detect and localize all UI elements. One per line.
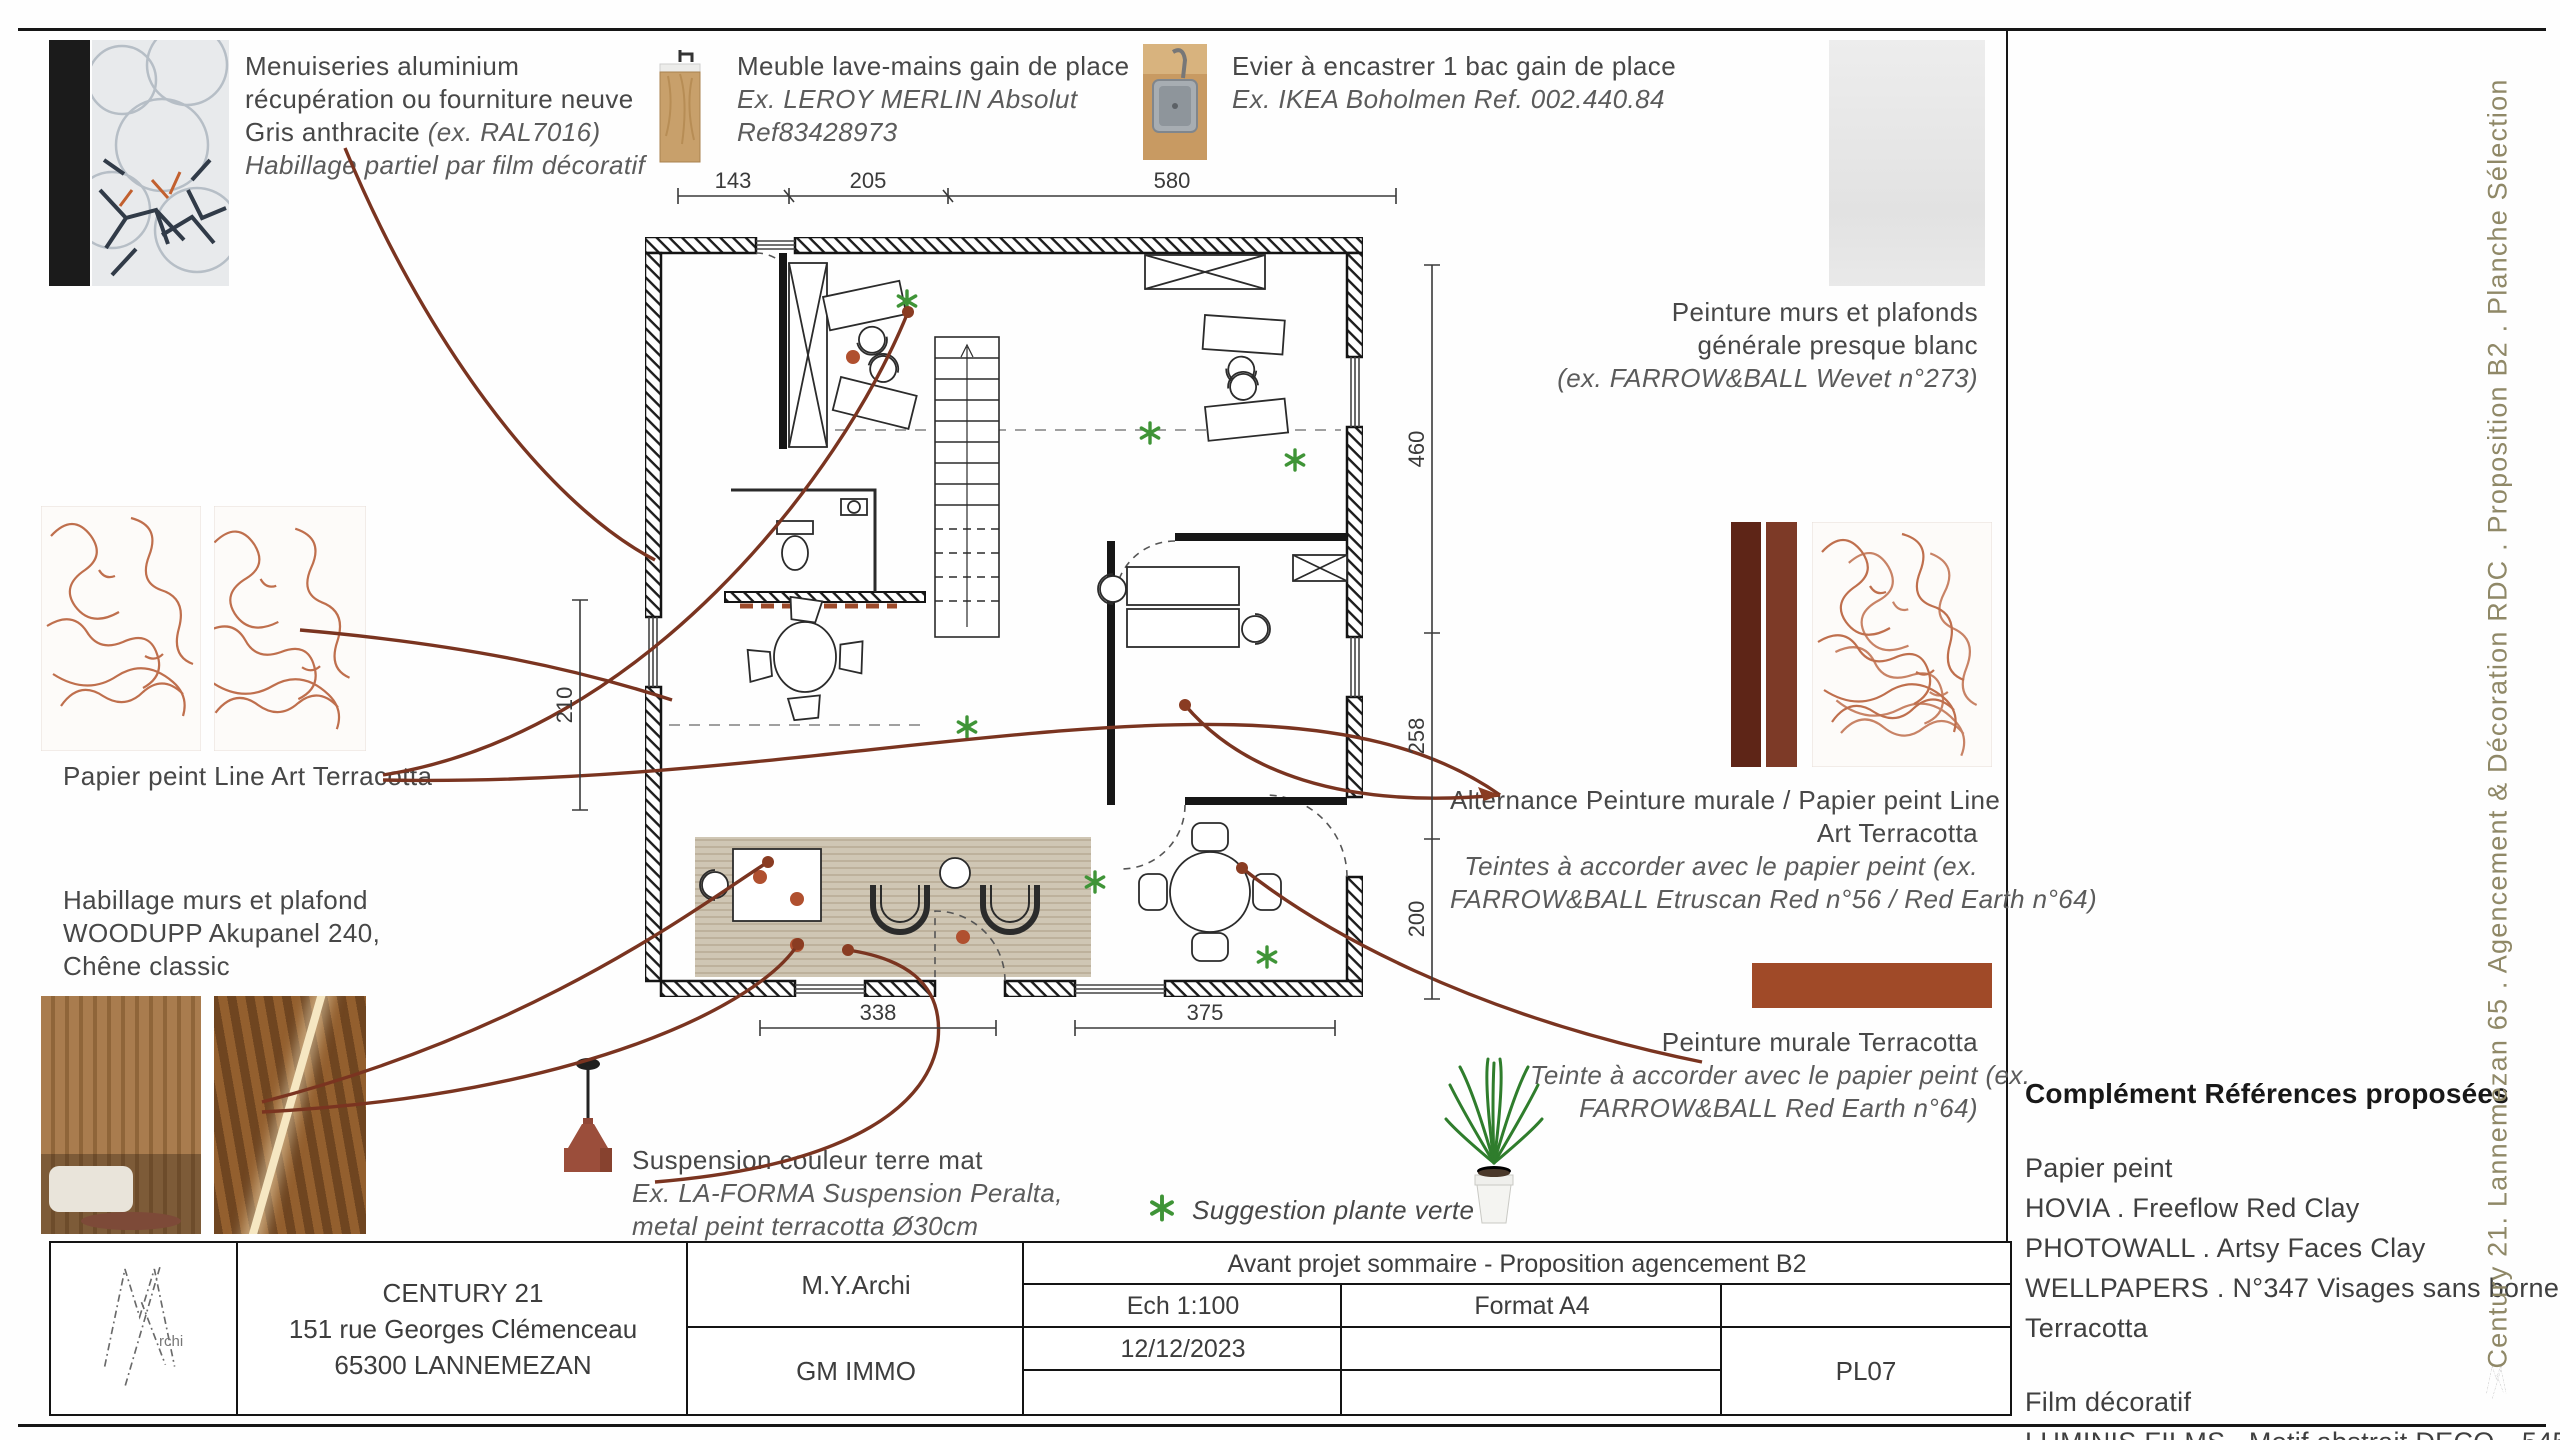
titleblock-empty-cell xyxy=(1340,1326,1724,1373)
dashed-guides xyxy=(669,430,1341,725)
annotation-line: Habillage murs et plafond xyxy=(63,884,380,917)
logo-text: rchi xyxy=(159,1333,183,1350)
swatch-papier-peint-2 xyxy=(214,506,366,751)
format-value: Format A4 xyxy=(1474,1292,1589,1321)
annotation-line: FARROW&BALL Etruscan Red n°56 / Red Eart… xyxy=(1450,883,1978,916)
stairs xyxy=(935,337,999,637)
client-name: GM IMMO xyxy=(796,1356,916,1387)
round-table xyxy=(748,597,863,721)
annotation-line: Peinture murs et plafonds xyxy=(1530,296,1978,329)
annotation-menuiseries: Menuiseries aluminium récupération ou fo… xyxy=(245,50,645,182)
swatch-papier-faces xyxy=(1812,522,1992,767)
svg-text:210: 210 xyxy=(552,687,577,724)
titleblock-empty-cell xyxy=(1340,1369,1724,1416)
company-address1: 151 rue Georges Clémenceau xyxy=(289,1311,637,1347)
swatch-peinture-blanc xyxy=(1829,40,1985,286)
swatch-papier-peint-1 xyxy=(41,506,201,751)
svg-text:580: 580 xyxy=(1154,168,1191,193)
my-archi-logo: rchi xyxy=(70,1254,220,1404)
scale-value: Ech 1:100 xyxy=(1127,1292,1240,1321)
photo-light-streak xyxy=(239,996,329,1234)
titleblock-logo-cell: rchi xyxy=(49,1241,240,1416)
plant-asterisk-icon xyxy=(1146,1192,1178,1224)
wc-fixtures xyxy=(777,499,867,570)
annotation-line: (ex. FARROW&BALL Wevet n°273) xyxy=(1530,362,1978,395)
annotation-alternance: Alternance Peinture murale / Papier pein… xyxy=(1450,784,1978,916)
annotation-peinture-blanc: Peinture murs et plafonds générale presq… xyxy=(1530,296,1978,395)
swatch-film-decoratif xyxy=(92,40,229,286)
photo-rug-shape xyxy=(81,1212,181,1230)
annotation-line: Suspension couleur terre mat xyxy=(632,1144,1063,1177)
annotation-evier: Evier à encastrer 1 bac gain de place Ex… xyxy=(1232,50,1676,116)
annotation-line: Peinture murale Terracotta xyxy=(1530,1026,1978,1059)
annotation-line: récupération ou fourniture neuve xyxy=(245,83,645,116)
annotation-line: Gris anthracite (ex. RAL7016) xyxy=(245,116,645,149)
meeting-table xyxy=(1139,823,1281,961)
annotation-line: Art Terracotta xyxy=(1450,817,1978,850)
titleblock-sheetnumber-cell: PL07 xyxy=(1720,1326,2012,1416)
photo-akupanel-closeup xyxy=(214,996,366,1234)
annotation-papier-peint: Papier peint Line Art Terracotta xyxy=(63,760,432,793)
annotation-line: générale presque blanc xyxy=(1530,329,1978,362)
photo-akupanel-interieur xyxy=(41,996,201,1234)
architect-name: M.Y.Archi xyxy=(801,1270,910,1301)
date-value: 12/12/2023 xyxy=(1120,1335,1245,1364)
photo-evier xyxy=(1143,44,1207,160)
photo-sofa-shape xyxy=(49,1166,133,1212)
annotation-line: Menuiseries aluminium xyxy=(245,50,645,83)
annotation-line: Ex. LA-FORMA Suspension Peralta, xyxy=(632,1177,1063,1210)
annotation-line: Teintes à accorder avec le papier peint … xyxy=(1450,850,1978,883)
annotation-line: Alternance Peinture murale / Papier pein… xyxy=(1450,784,1978,817)
annotation-meuble: Meuble lave-mains gain de place Ex. LERO… xyxy=(737,50,1130,149)
annotation-line: Meuble lave-mains gain de place xyxy=(737,50,1130,83)
annotation-line: metal peint terracotta Ø30cm xyxy=(632,1210,1063,1243)
annotation-line: Habillage partiel par film décoratif xyxy=(245,149,645,182)
workstation xyxy=(1098,567,1270,647)
svg-text:143: 143 xyxy=(715,168,752,193)
project-title: Avant projet sommaire - Proposition agen… xyxy=(1227,1250,1806,1279)
annotation-plante: Suggestion plante verte xyxy=(1192,1194,1474,1227)
titleblock-client-cell: GM IMMO xyxy=(686,1326,1026,1416)
annotation-habillage: Habillage murs et plafond WOODUPP Akupan… xyxy=(63,884,380,983)
sheet-number: PL07 xyxy=(1836,1356,1897,1387)
swatch-paint-bar-dark xyxy=(1731,522,1761,767)
annotation-line: FARROW&BALL Red Earth n°64) xyxy=(1530,1092,1978,1125)
annotation-line: Chêne classic xyxy=(63,950,380,983)
annotation-line: Ex. LEROY MERLIN Absolut xyxy=(737,83,1130,116)
swatch-peinture-terracotta xyxy=(1752,963,1992,1008)
logo-watermark xyxy=(2462,1362,2552,1432)
svg-text:205: 205 xyxy=(850,168,887,193)
workstation xyxy=(1200,315,1288,441)
titleblock-architect-cell: M.Y.Archi xyxy=(686,1241,1026,1330)
annotation-line: Teinte à accorder avec le papier peint (… xyxy=(1530,1059,1978,1092)
presentation-sheet: Menuiseries aluminium récupération ou fo… xyxy=(0,0,2560,1440)
titleblock-empty-cell xyxy=(1022,1369,1344,1416)
titleblock-project-cell: Avant projet sommaire - Proposition agen… xyxy=(1022,1241,2012,1287)
svg-text:460: 460 xyxy=(1404,431,1429,468)
side-caption: Century 21. Lannemezan 65 . Agencement &… xyxy=(2483,78,2514,1368)
titleblock-format-cell: Format A4 xyxy=(1340,1283,1724,1330)
photo-suspension xyxy=(556,1056,620,1188)
side-caption-wrap: Century 21. Lannemezan 65 . Agencement &… xyxy=(2468,28,2528,1418)
annotation-line: WOODUPP Akupanel 240, xyxy=(63,917,380,950)
annotation-line: Ex. IKEA Boholmen Ref. 002.440.84 xyxy=(1232,83,1676,116)
svg-text:258: 258 xyxy=(1404,718,1429,755)
svg-text:200: 200 xyxy=(1404,901,1429,938)
swatch-paint-bar-mid xyxy=(1766,522,1797,767)
photo-meuble-lave-mains xyxy=(650,44,708,166)
swatch-anthracite xyxy=(49,40,90,286)
annotation-line: Ref83428973 xyxy=(737,116,1130,149)
annotation-line: Evier à encastrer 1 bac gain de place xyxy=(1232,50,1676,83)
floor-plan xyxy=(645,237,1363,997)
annotation-suspension: Suspension couleur terre mat Ex. LA-FORM… xyxy=(632,1144,1063,1243)
svg-text:338: 338 xyxy=(860,1000,897,1025)
annotation-peinture-terracotta: Peinture murale Terracotta Teinte à acco… xyxy=(1530,1026,1978,1125)
titleblock-date-cell: 12/12/2023 xyxy=(1022,1326,1344,1373)
company-name: CENTURY 21 xyxy=(289,1275,637,1311)
titleblock-empty-cell xyxy=(1720,1283,2012,1330)
titleblock-scale-cell: Ech 1:100 xyxy=(1022,1283,1344,1330)
titleblock-company-cell: CENTURY 21 151 rue Georges Clémenceau 65… xyxy=(236,1241,690,1416)
frame-top-line xyxy=(18,28,2546,31)
company-address2: 65300 LANNEMEZAN xyxy=(289,1347,637,1383)
svg-text:375: 375 xyxy=(1187,1000,1224,1025)
